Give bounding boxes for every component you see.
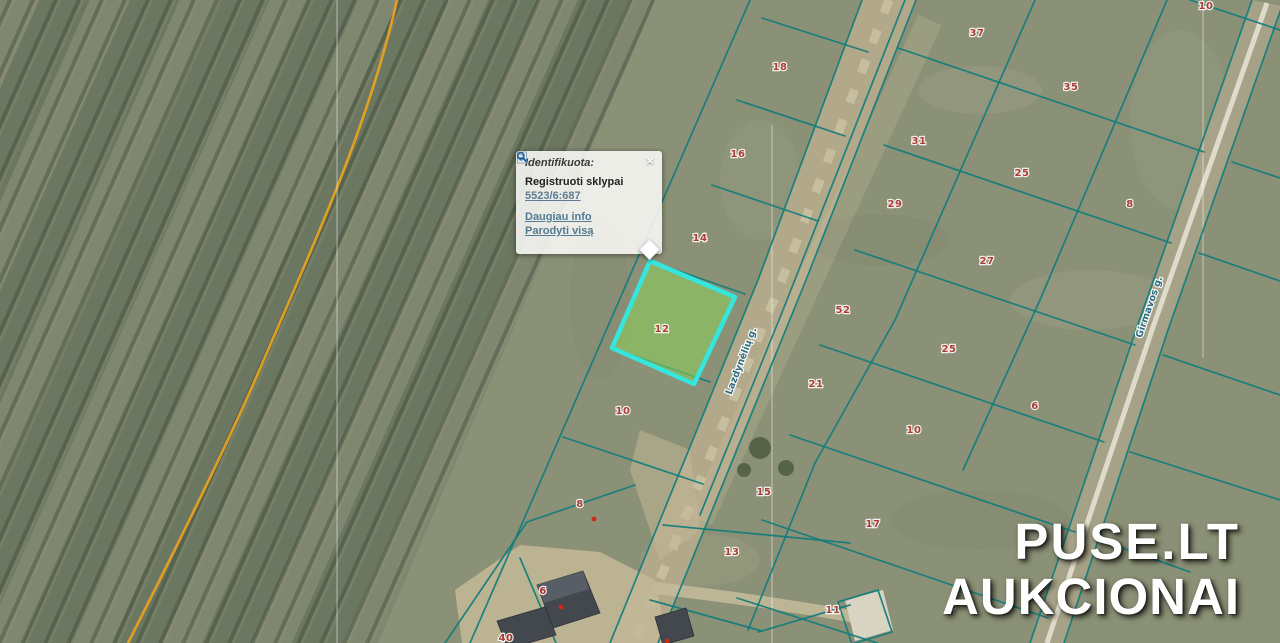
- shrub: [778, 460, 794, 476]
- parcel-label: 12: [655, 324, 670, 335]
- parcel-label: 10: [907, 425, 922, 436]
- more-info-label: Daugiau info: [525, 211, 592, 223]
- identify-popup: Identifikuota: × Registruoti sklypai 552…: [516, 151, 662, 254]
- parcel-label: 6: [1031, 401, 1038, 412]
- parcel-label: 10: [1199, 1, 1214, 12]
- parcel-label: 6: [539, 586, 546, 597]
- parcel-label: 52: [836, 305, 851, 316]
- parcel-label: 17: [866, 519, 881, 530]
- parcel-label: 21: [809, 379, 824, 390]
- parcel-label: 15: [757, 487, 772, 498]
- shrub: [737, 463, 751, 477]
- parcel-label: 29: [888, 199, 903, 210]
- parcel-label: 37: [970, 28, 985, 39]
- parcel-label: 40: [499, 633, 514, 643]
- shrub: [749, 437, 771, 459]
- more-info-link[interactable]: Daugiau info: [525, 211, 653, 223]
- parcel-label: 16: [731, 149, 746, 160]
- magnifier-icon: [516, 151, 528, 164]
- parcel-code-link[interactable]: 5523/6:687: [525, 190, 581, 202]
- watermark-line2: AUKCIONAI: [942, 569, 1240, 624]
- parcel-label: 13: [725, 547, 740, 558]
- parcel-label: 18: [773, 62, 788, 73]
- popup-title: Identifikuota:: [516, 151, 662, 169]
- point-marker: [559, 605, 564, 610]
- pipeline-line: [128, 0, 397, 643]
- show-all-link[interactable]: Parodyti visą: [525, 225, 653, 237]
- point-marker: [592, 517, 597, 522]
- map-viewport[interactable]: Lazdynėlių g.Girmavos g. 183710163135258…: [0, 0, 1280, 643]
- parcel-label: 8: [1126, 199, 1133, 210]
- parcel-label: 35: [1064, 82, 1079, 93]
- parcel-label: 14: [693, 233, 708, 244]
- show-all-label: Parodyti visą: [525, 225, 593, 237]
- parcel-label: 25: [1015, 168, 1030, 179]
- parcel-label: 11: [826, 605, 841, 616]
- parcel-label: 8: [576, 499, 583, 510]
- parcel-label: 27: [980, 256, 995, 267]
- watermark-line1: PUSE.LT: [942, 514, 1240, 569]
- layer-title: Registruoti sklypai: [525, 176, 653, 188]
- parcel-label: 10: [616, 406, 631, 417]
- parcel-label: 25: [942, 344, 957, 355]
- watermark: PUSE.LT AUKCIONAI: [942, 514, 1240, 624]
- parcel-label: 31: [912, 136, 927, 147]
- close-icon[interactable]: ×: [643, 154, 657, 168]
